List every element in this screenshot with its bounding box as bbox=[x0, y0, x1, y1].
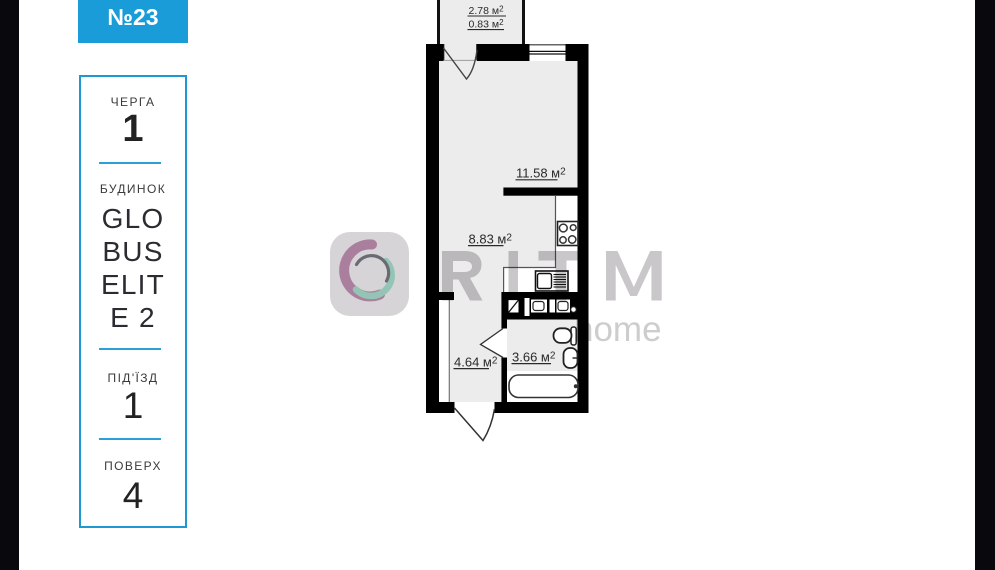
svg-text:home: home bbox=[574, 310, 662, 349]
